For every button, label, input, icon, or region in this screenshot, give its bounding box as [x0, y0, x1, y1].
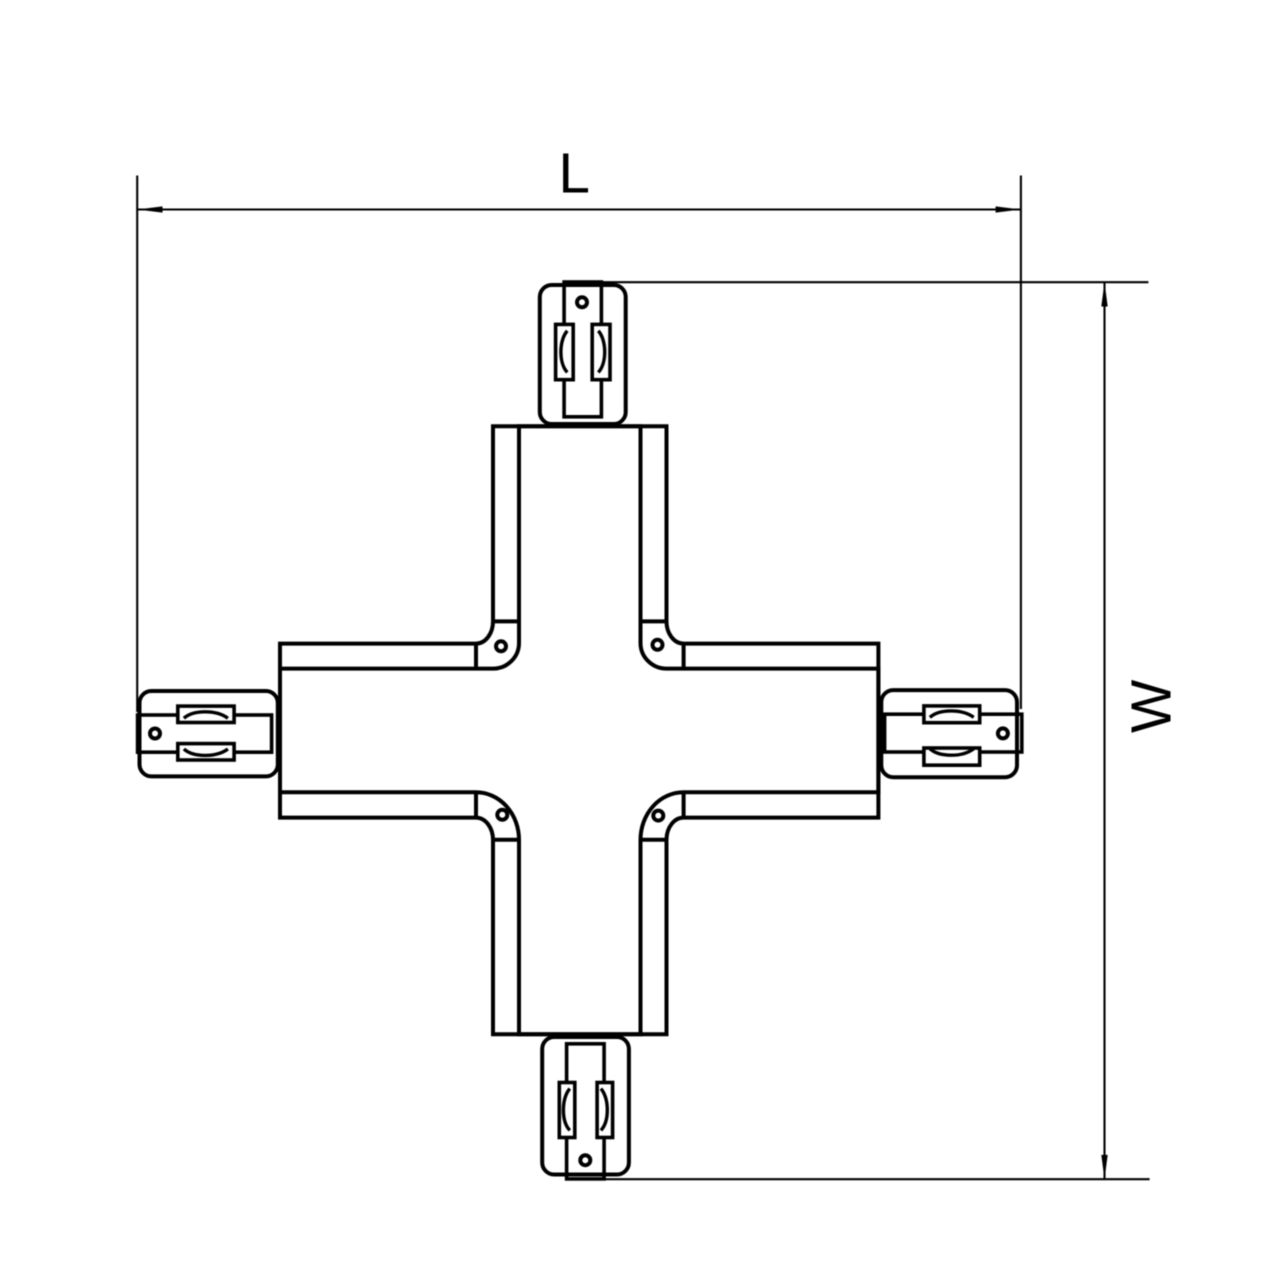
svg-text:L: L — [559, 142, 590, 205]
svg-text:W: W — [1120, 679, 1183, 733]
